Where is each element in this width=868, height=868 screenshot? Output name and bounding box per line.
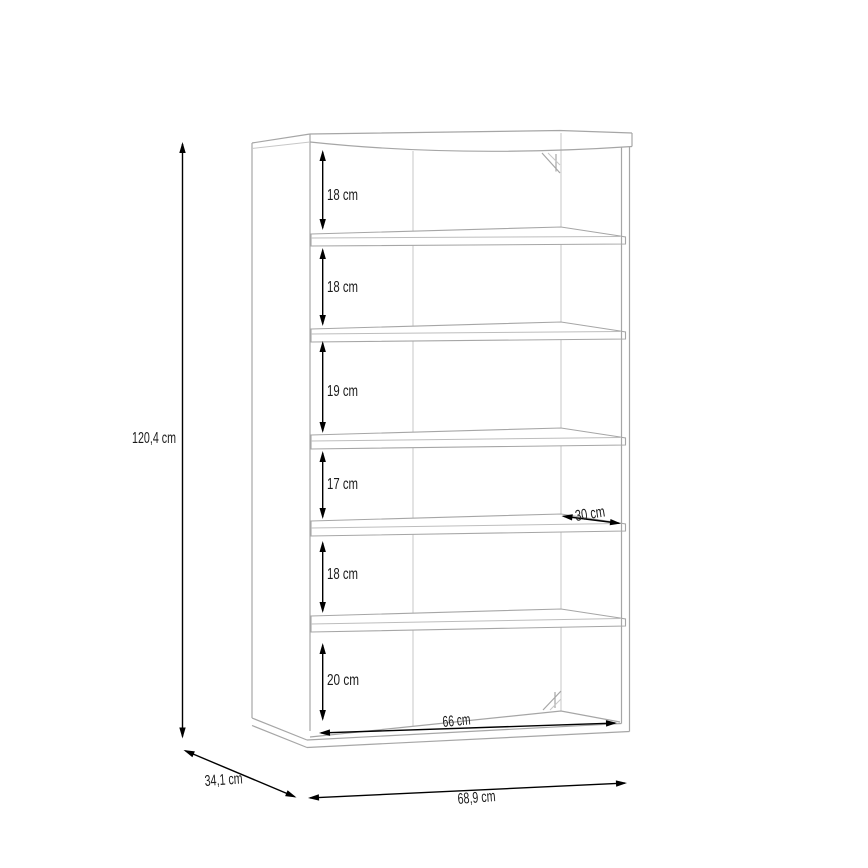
compartment-3-label: 19 cm xyxy=(327,383,358,400)
top-panel xyxy=(310,131,632,152)
dim-arrow-comp-3 xyxy=(320,341,326,433)
shelf-3 xyxy=(311,428,626,449)
dim-arrow-comp-4 xyxy=(320,451,326,519)
furniture-dimension-diagram: 120,4 cm 34,1 cm 68,9 cm 66 cm 30 cm 18 … xyxy=(0,0,868,868)
dim-arrow-comp-5 xyxy=(320,541,326,613)
diagram-canvas: 120,4 cm 34,1 cm 68,9 cm 66 cm 30 cm 18 … xyxy=(0,0,868,868)
overall-height-label: 120,4 cm xyxy=(132,430,176,447)
compartment-6-label: 20 cm xyxy=(327,672,359,689)
inner-width-label: 66 cm xyxy=(442,711,472,731)
dim-arrow-comp-6 xyxy=(320,643,326,721)
shelf-1 xyxy=(311,227,626,246)
dim-arrow-height xyxy=(179,142,185,739)
dimension-labels: 120,4 cm 34,1 cm 68,9 cm 66 cm 30 cm 18 … xyxy=(132,187,606,808)
left-side-panel xyxy=(252,134,310,748)
compartment-5-label: 18 cm xyxy=(327,566,358,583)
dim-arrow-comp-1 xyxy=(320,150,326,230)
bottom-corner-bracket xyxy=(543,691,561,710)
overall-depth-label: 34,1 cm xyxy=(204,770,243,790)
overall-width-label: 68,9 cm xyxy=(457,788,496,808)
compartment-1-label: 18 cm xyxy=(327,187,358,204)
cabinet-outline xyxy=(252,131,632,748)
shelves xyxy=(311,227,626,632)
compartment-2-label: 18 cm xyxy=(327,279,358,296)
shelf-2 xyxy=(311,322,626,342)
top-corner-bracket xyxy=(542,153,560,173)
dim-arrow-comp-2 xyxy=(320,248,326,326)
shelf-5 xyxy=(311,609,626,632)
compartment-4-label: 17 cm xyxy=(327,476,358,493)
